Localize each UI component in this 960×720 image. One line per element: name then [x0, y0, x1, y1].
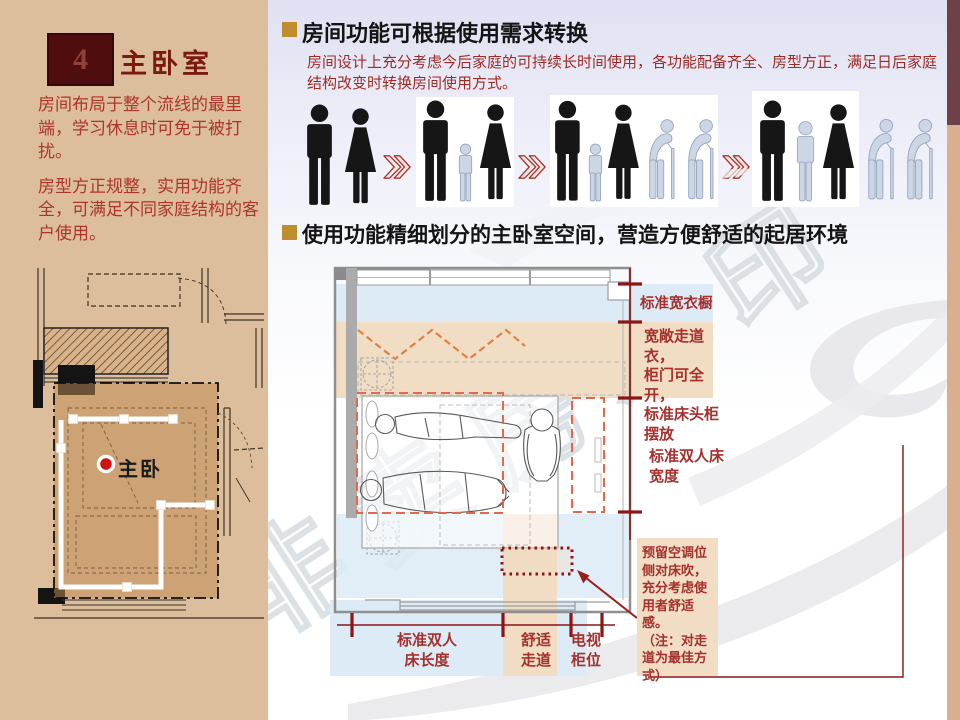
- tv-zone-dashed: [572, 398, 604, 512]
- woman-icon: [821, 102, 856, 203]
- elder-icon: [859, 111, 898, 203]
- child-icon: [585, 143, 606, 203]
- slide: 非卖房水印 4 主卧室 房间布局于整个流线的最里端，学习休息时可免于被打扰。 房…: [0, 0, 960, 720]
- elder-icon: [679, 111, 718, 203]
- man-icon: [302, 104, 337, 207]
- edge-strip-tan: [947, 125, 960, 720]
- ac-note-box: 预留空调位 侧对床吹， 充分考虑使 用者舒适感。 （注：对走 道为最佳方 式）: [637, 538, 718, 676]
- woman-icon: [343, 106, 378, 207]
- page-title: 主卧室: [120, 42, 213, 81]
- section2-heading-text: 使用功能精细划分的主卧室空间，营造方便舒适的起居环境: [302, 219, 848, 249]
- family-stage-grown-family: [752, 95, 937, 207]
- annotation-wardrobe: 标准宽衣橱: [640, 292, 720, 313]
- child-icon: [455, 143, 476, 203]
- heading-bullet-icon: [282, 22, 297, 37]
- room-location-dot: [99, 457, 114, 472]
- floor-plan-thumbnail: [28, 268, 264, 620]
- ac-note-text: 预留空调位 侧对床吹， 充分考虑使 用者舒适感。 （注：对走 道为最佳方 式）: [637, 538, 718, 684]
- woman-icon: [478, 102, 513, 203]
- heading-bullet-icon: [282, 225, 297, 240]
- family-stage-couple: [302, 100, 378, 207]
- dimension-label-bed-length: 标准双人 床长度: [382, 631, 472, 671]
- ac-position-box: [502, 548, 572, 574]
- section1-body: 房间设计上充分考虑今后家庭的可持续长时间使用，各功能配备齐全、房型方正，满足日后…: [307, 52, 941, 94]
- man-icon: [550, 100, 585, 203]
- dimension-label-tv-cabinet: 电视 柜位: [555, 631, 617, 671]
- room-label: 主卧: [118, 453, 162, 482]
- section-number: 4: [73, 43, 88, 77]
- family-stage-three-generations: [550, 95, 718, 207]
- edge-strip-maroon: [947, 0, 960, 125]
- woman-icon: [606, 102, 641, 203]
- sidebar-paragraph: 房型方正规整，实用功能齐全，可满足不同家庭结构的客户使用。: [38, 175, 260, 246]
- section1-heading-text: 房间功能可根据使用需求转换: [302, 16, 588, 48]
- teen-icon: [792, 121, 819, 203]
- elder-pair-group: [859, 95, 937, 207]
- family-stage-couple-child: [416, 97, 514, 207]
- section2-heading: 使用功能精细划分的主卧室空间，营造方便舒适的起居环境: [282, 219, 848, 249]
- family-core-group: [752, 91, 859, 207]
- section-number-box: 4: [47, 33, 114, 86]
- highlighted-room: [54, 383, 218, 598]
- sidebar-description: 房间布局于整个流线的最里端，学习休息时可免于被打扰。 房型方正规整，实用功能齐全…: [38, 93, 260, 256]
- section1-heading: 房间功能可根据使用需求转换: [282, 16, 588, 48]
- elder-icon: [898, 111, 937, 203]
- annotation-closet-walk: 宽敞走道衣， 柜门可全开， 标准床头柜 摆放: [644, 327, 724, 444]
- elder-icon: [640, 111, 679, 203]
- man-icon: [418, 100, 453, 203]
- sidebar-paragraph: 房间布局于整个流线的最里端，学习休息时可免于被打扰。: [38, 93, 260, 164]
- annotation-bed-width: 标准双人床 宽度: [649, 447, 731, 487]
- man-icon: [755, 100, 790, 203]
